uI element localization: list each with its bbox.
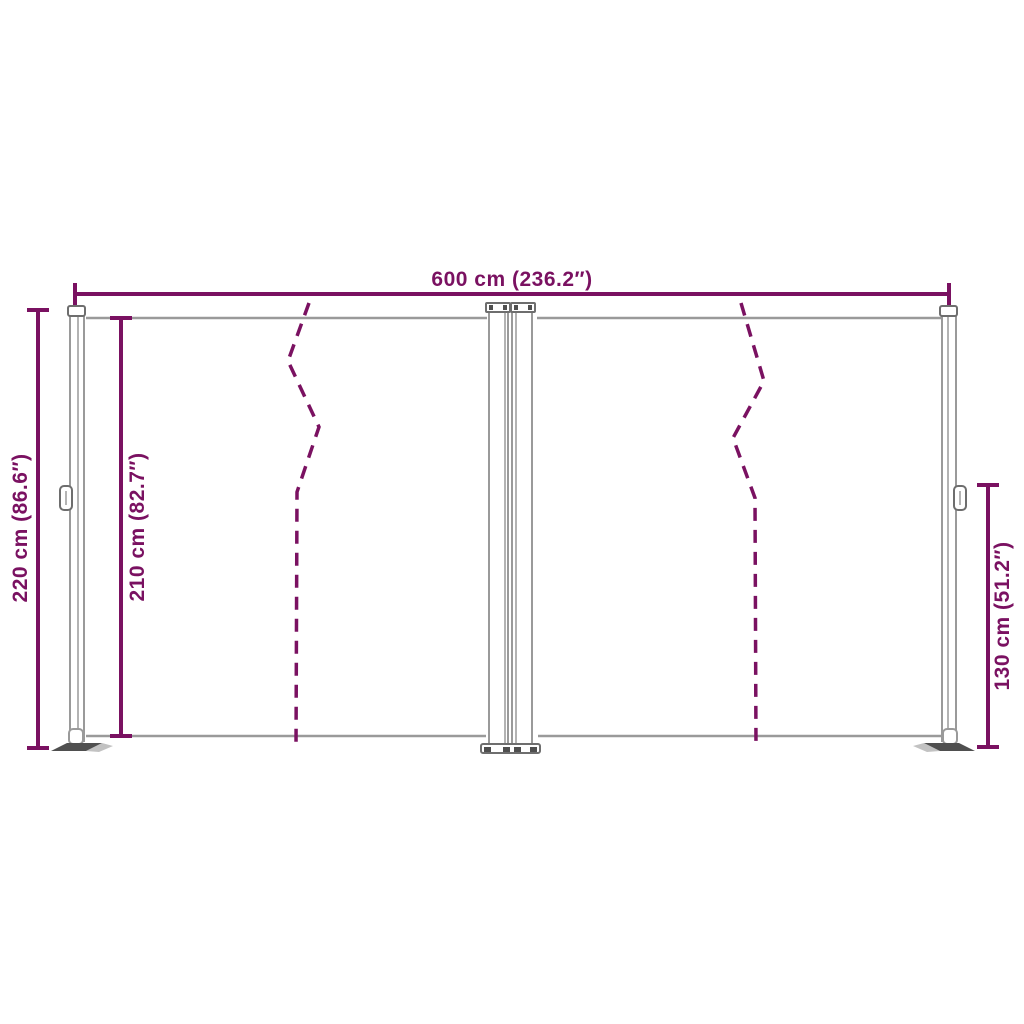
right-pole-bottom-fitting — [943, 729, 957, 744]
cassette-cap-tick-2 — [503, 305, 507, 310]
right-pole-body — [942, 314, 956, 741]
center-double-cassette — [481, 303, 540, 753]
left-fold-line — [288, 303, 319, 748]
left-pole-body — [70, 314, 84, 741]
cassette-cap-tick-4 — [528, 305, 532, 310]
left-pole-bottom-fitting — [69, 729, 83, 744]
width-dimension-label: 600 cm (236.2″) — [431, 268, 592, 291]
left-pole — [51, 306, 113, 752]
dimension-height-left-inner: 210 cm (82.7″) — [110, 318, 149, 736]
height-left-inner-label: 210 cm (82.7″) — [126, 453, 149, 602]
left-pole-cap — [68, 306, 85, 316]
right-fold-line — [733, 303, 764, 748]
cassette-cap-tick-3 — [514, 305, 518, 310]
height-right-label: 130 cm (51.2″) — [991, 542, 1014, 691]
awning-structure — [51, 303, 975, 753]
cassette-right-column — [512, 309, 532, 745]
dimension-height-right: 130 cm (51.2″) — [977, 485, 1014, 747]
cassette-base-foot-1 — [484, 747, 491, 752]
cassette-base-foot-4 — [530, 747, 537, 752]
cassette-base-foot-2 — [503, 747, 510, 752]
cassette-base-foot-3 — [514, 747, 521, 752]
retractable-side-awning-diagram: 600 cm (236.2″) 220 cm (86.6″) 210 cm (8… — [0, 0, 1024, 1024]
dimension-width-total: 600 cm (236.2″) — [75, 268, 949, 305]
cassette-cap-tick-1 — [489, 305, 493, 310]
height-left-outer-label: 220 cm (86.6″) — [9, 454, 32, 603]
right-pole-cap — [940, 306, 957, 316]
product-dimension-diagram: 600 cm (236.2″) 220 cm (86.6″) 210 cm (8… — [0, 0, 1024, 1024]
dimension-height-left-outer: 220 cm (86.6″) — [9, 310, 49, 748]
right-pole — [913, 306, 975, 752]
